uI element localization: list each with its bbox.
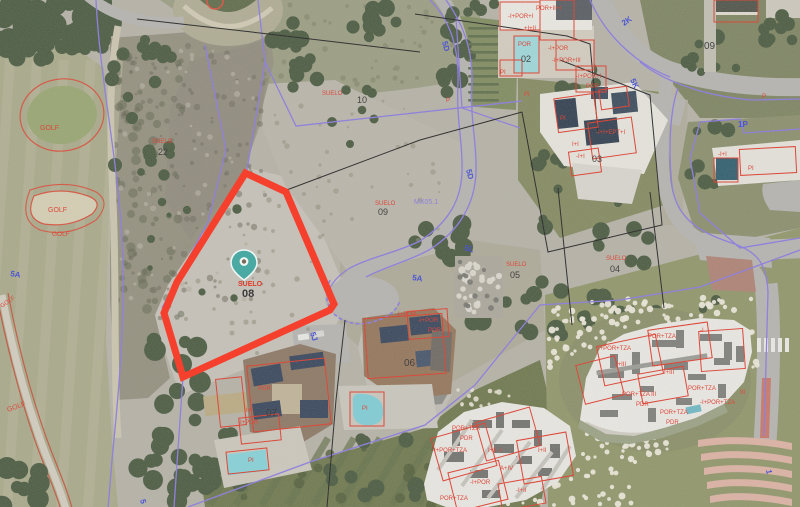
svg-text:08: 08 [242, 288, 254, 300]
svg-text:SUELO: SUELO [238, 281, 263, 288]
